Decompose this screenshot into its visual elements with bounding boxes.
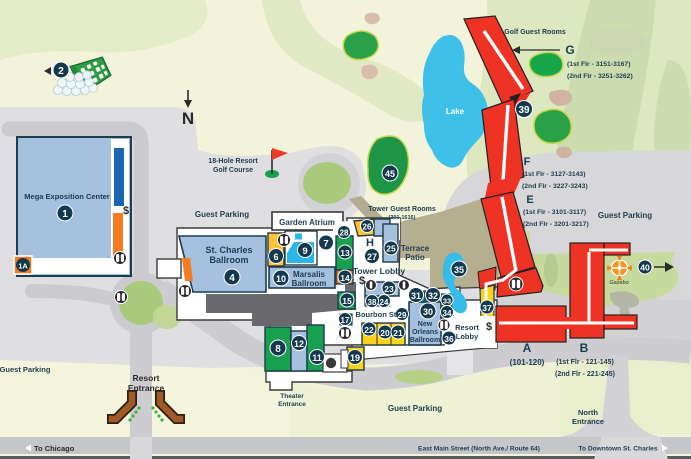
svg-text:$: $ — [359, 275, 365, 287]
svg-text:26: 26 — [363, 223, 372, 232]
svg-text:(301-1616): (301-1616) — [389, 215, 416, 221]
svg-text:Theater: Theater — [280, 393, 304, 400]
svg-text:40: 40 — [640, 263, 650, 273]
svg-text:To Chicago: To Chicago — [34, 444, 75, 453]
svg-text:24: 24 — [380, 298, 389, 307]
svg-text:23: 23 — [384, 284, 394, 294]
svg-text:30: 30 — [423, 307, 433, 317]
svg-text:Ballroom: Ballroom — [292, 279, 327, 288]
svg-text:$: $ — [123, 205, 129, 217]
svg-text:29: 29 — [398, 311, 407, 320]
svg-text:Lobby: Lobby — [456, 332, 479, 341]
svg-text:2: 2 — [58, 66, 64, 77]
svg-text:N: N — [182, 109, 194, 128]
svg-text:Entrance: Entrance — [278, 401, 306, 408]
svg-text:F: F — [524, 156, 531, 168]
svg-text:8: 8 — [275, 344, 281, 355]
svg-text:34: 34 — [443, 309, 452, 318]
svg-text:14: 14 — [340, 273, 350, 283]
svg-text:19: 19 — [350, 353, 360, 363]
svg-text:(1st Flr - 3127-3143): (1st Flr - 3127-3143) — [522, 171, 585, 178]
svg-text:Orleans: Orleans — [412, 329, 438, 336]
svg-text:21: 21 — [393, 328, 403, 338]
svg-text:(1st Flr - 121-145): (1st Flr - 121-145) — [556, 359, 614, 366]
svg-text:Mega Exposition Center: Mega Exposition Center — [24, 192, 110, 201]
svg-text:(2nd Flr - 3227-3243): (2nd Flr - 3227-3243) — [522, 183, 588, 190]
svg-text:7: 7 — [323, 239, 328, 250]
svg-text:East Main Street (North Ave./: East Main Street (North Ave./ Route 64) — [418, 446, 540, 453]
svg-text:(1st Flr - 3101-3117): (1st Flr - 3101-3117) — [523, 209, 586, 216]
svg-text:9: 9 — [302, 246, 307, 257]
svg-text:Lake: Lake — [446, 107, 465, 116]
svg-text:12: 12 — [294, 339, 304, 349]
svg-text:11: 11 — [312, 353, 322, 363]
svg-text:22: 22 — [364, 325, 374, 335]
svg-text:1: 1 — [62, 209, 68, 220]
svg-text:Golf Course: Golf Course — [213, 167, 253, 174]
svg-text:25: 25 — [386, 244, 396, 254]
svg-text:17: 17 — [341, 316, 350, 325]
svg-text:31: 31 — [411, 291, 421, 301]
svg-text:36: 36 — [444, 334, 454, 344]
svg-text:Garden Atrium: Garden Atrium — [279, 218, 335, 227]
svg-text:$: $ — [486, 321, 492, 333]
svg-text:A: A — [523, 341, 532, 355]
svg-text:G: G — [565, 43, 574, 57]
svg-text:32: 32 — [428, 291, 438, 301]
svg-text:Patio: Patio — [405, 253, 425, 262]
svg-text:15: 15 — [342, 296, 352, 306]
svg-text:Guest Parking: Guest Parking — [598, 211, 652, 220]
svg-text:20: 20 — [380, 328, 390, 338]
svg-text:38: 38 — [368, 298, 377, 307]
svg-text:H: H — [366, 237, 374, 249]
svg-text:Resort: Resort — [133, 373, 160, 383]
svg-text:(1st Flr - 3151-3167): (1st Flr - 3151-3167) — [567, 61, 630, 68]
svg-text:27: 27 — [367, 252, 377, 262]
svg-text:Tower Guest Rooms: Tower Guest Rooms — [368, 206, 436, 213]
svg-text:Tower Lobby: Tower Lobby — [353, 266, 406, 276]
svg-text:4: 4 — [229, 273, 235, 284]
svg-text:Bourbon St.: Bourbon St. — [356, 310, 399, 319]
svg-text:Guest Parking: Guest Parking — [195, 210, 249, 219]
svg-text:Ballroom: Ballroom — [410, 337, 440, 344]
svg-text:Entrance: Entrance — [128, 383, 165, 393]
svg-text:Guest Parking: Guest Parking — [0, 365, 51, 374]
svg-text:B: B — [580, 341, 589, 355]
svg-text:St. Charles: St. Charles — [205, 245, 252, 255]
svg-text:Guest Parking: Guest Parking — [388, 404, 442, 413]
svg-text:18-Hole Resort: 18-Hole Resort — [208, 158, 258, 165]
svg-text:(2nd Flr - 221-245): (2nd Flr - 221-245) — [555, 371, 615, 378]
svg-text:Terrace: Terrace — [401, 244, 430, 253]
svg-text:North: North — [578, 408, 598, 417]
svg-text:E: E — [526, 194, 533, 206]
svg-text:Gazebo: Gazebo — [609, 280, 628, 286]
svg-text:35: 35 — [454, 265, 464, 275]
svg-text:Ballroom: Ballroom — [209, 255, 248, 265]
svg-text:13: 13 — [340, 248, 350, 258]
svg-text:39: 39 — [518, 105, 530, 116]
svg-text:Golf Guest Rooms: Golf Guest Rooms — [504, 29, 566, 36]
svg-text:Entrance: Entrance — [572, 417, 604, 426]
svg-text:(101-120): (101-120) — [510, 358, 545, 367]
svg-text:1A: 1A — [18, 262, 28, 271]
svg-text:To Downtown St. Charles: To Downtown St. Charles — [578, 446, 657, 453]
svg-text:10: 10 — [276, 274, 286, 284]
svg-text:Resort: Resort — [455, 323, 479, 332]
svg-text:37: 37 — [482, 303, 492, 313]
svg-text:(2nd Flr - 3201-3217): (2nd Flr - 3201-3217) — [523, 221, 589, 228]
svg-text:33: 33 — [443, 297, 451, 306]
svg-text:28: 28 — [340, 229, 349, 238]
svg-text:New: New — [418, 321, 433, 328]
svg-text:6: 6 — [273, 252, 278, 262]
svg-text:45: 45 — [385, 169, 395, 179]
svg-text:(2nd Flr - 3251-3262): (2nd Flr - 3251-3262) — [567, 73, 633, 80]
svg-text:Marsalis: Marsalis — [293, 270, 326, 279]
